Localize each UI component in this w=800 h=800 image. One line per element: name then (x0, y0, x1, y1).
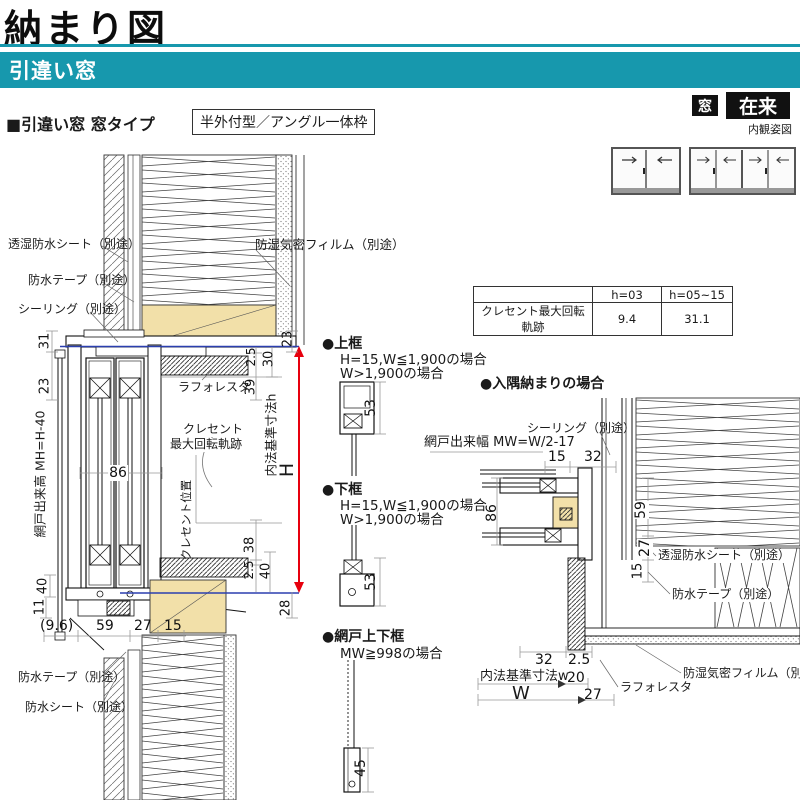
detail-uwagamachi-cond2: W>1,900の場合 (340, 362, 444, 382)
dim-59: 59 (96, 618, 114, 634)
label-H: H (276, 463, 298, 477)
corner-label-laforesta: ラフォレスタ (620, 681, 692, 695)
corner-label-sealing: シーリング（別途） (527, 422, 635, 436)
detail-uwagamachi-dim-53: 53 (363, 399, 379, 417)
dim-15: 15 (164, 618, 182, 634)
dim-2-5-a: 2.5 (244, 347, 258, 366)
corner-label-bousui-tape: 防水テープ（別途） (672, 588, 779, 602)
dim-23-left: 23 (38, 378, 53, 395)
dim-38: 38 (243, 537, 258, 554)
inner-view-icon-2panel (612, 148, 680, 194)
dim-2-5-b: 2.5 (242, 560, 256, 579)
corner-dim-20: 20 (567, 670, 585, 686)
nori-diagram-page: 納まり図 引違い窓 窓 在来 内観姿図 ■引違い窓 窓タイプ 半外付型／アングル… (0, 0, 800, 800)
label-boushitsu-film: 防湿気密フィルム（別途） (255, 238, 405, 252)
label-bousui-tape-bottom: 防水テープ（別途） (18, 671, 125, 685)
corner-title: ●入隅納まりの場合 (480, 373, 604, 393)
corner-dim-32-top: 32 (584, 449, 602, 465)
label-crescent-2: 最大回転軌跡 (170, 438, 242, 452)
detail-shitagamachi-dim-53: 53 (363, 573, 379, 591)
dim-40-left: 40 (36, 578, 51, 595)
label-crescent-pos: クレセント位置 (178, 480, 194, 561)
dim-27: 27 (134, 618, 152, 634)
corner-label-W: W (512, 684, 530, 705)
dim-28: 28 (279, 600, 294, 617)
label-bousui-tape: 防水テープ（別途） (28, 274, 135, 288)
dim-30: 30 (262, 351, 277, 368)
corner-label-toushitsu: 透湿防水シート（別途） (658, 549, 790, 563)
dim-86: 86 (108, 465, 128, 481)
corner-dim-86: 86 (484, 504, 500, 522)
corner-label-boushitsu-film: 防湿気密フィルム（別途） (683, 667, 800, 681)
label-sealing: シーリング（別途） (18, 303, 126, 317)
dim-9-6: (9.6) (40, 618, 73, 634)
dim-31: 31 (38, 333, 53, 350)
corner-dim-27-bottom: 27 (584, 687, 602, 703)
label-bousui-sheet-bottom: 防水シート（別途） (25, 701, 133, 715)
detail-amido-cond1: MW≧998の場合 (340, 642, 443, 662)
dim-11: 11 (33, 599, 48, 616)
label-amido-height: 網戸出来高 MH=H-40 (30, 411, 49, 538)
corner-dim-27: 27 (637, 539, 653, 557)
label-toushitsu-sheet: 透湿防水シート（別途） (8, 238, 140, 252)
detail-uwagamachi-drawing (340, 382, 386, 476)
corner-dim-15-mid: 15 (631, 563, 646, 580)
dim-40-right: 40 (259, 563, 274, 580)
corner-dim-32-bottom: 32 (535, 652, 553, 668)
label-crescent-1: クレセント (183, 423, 243, 437)
corner-dim-59: 59 (633, 501, 649, 519)
corner-dim-15-top: 15 (548, 449, 566, 465)
detail-amido-dim-45: 45 (353, 759, 369, 777)
dim-39: 39 (244, 379, 259, 396)
detail-shitagamachi-drawing (340, 525, 386, 606)
dim-23-right: 23 (281, 331, 296, 348)
corner-dim-2-5: 2.5 (568, 652, 590, 668)
inner-view-icon-4panel (690, 148, 795, 194)
label-laforesta: ラフォレスタ (178, 381, 250, 395)
detail-shitagamachi-cond2: W>1,900の場合 (340, 508, 444, 528)
